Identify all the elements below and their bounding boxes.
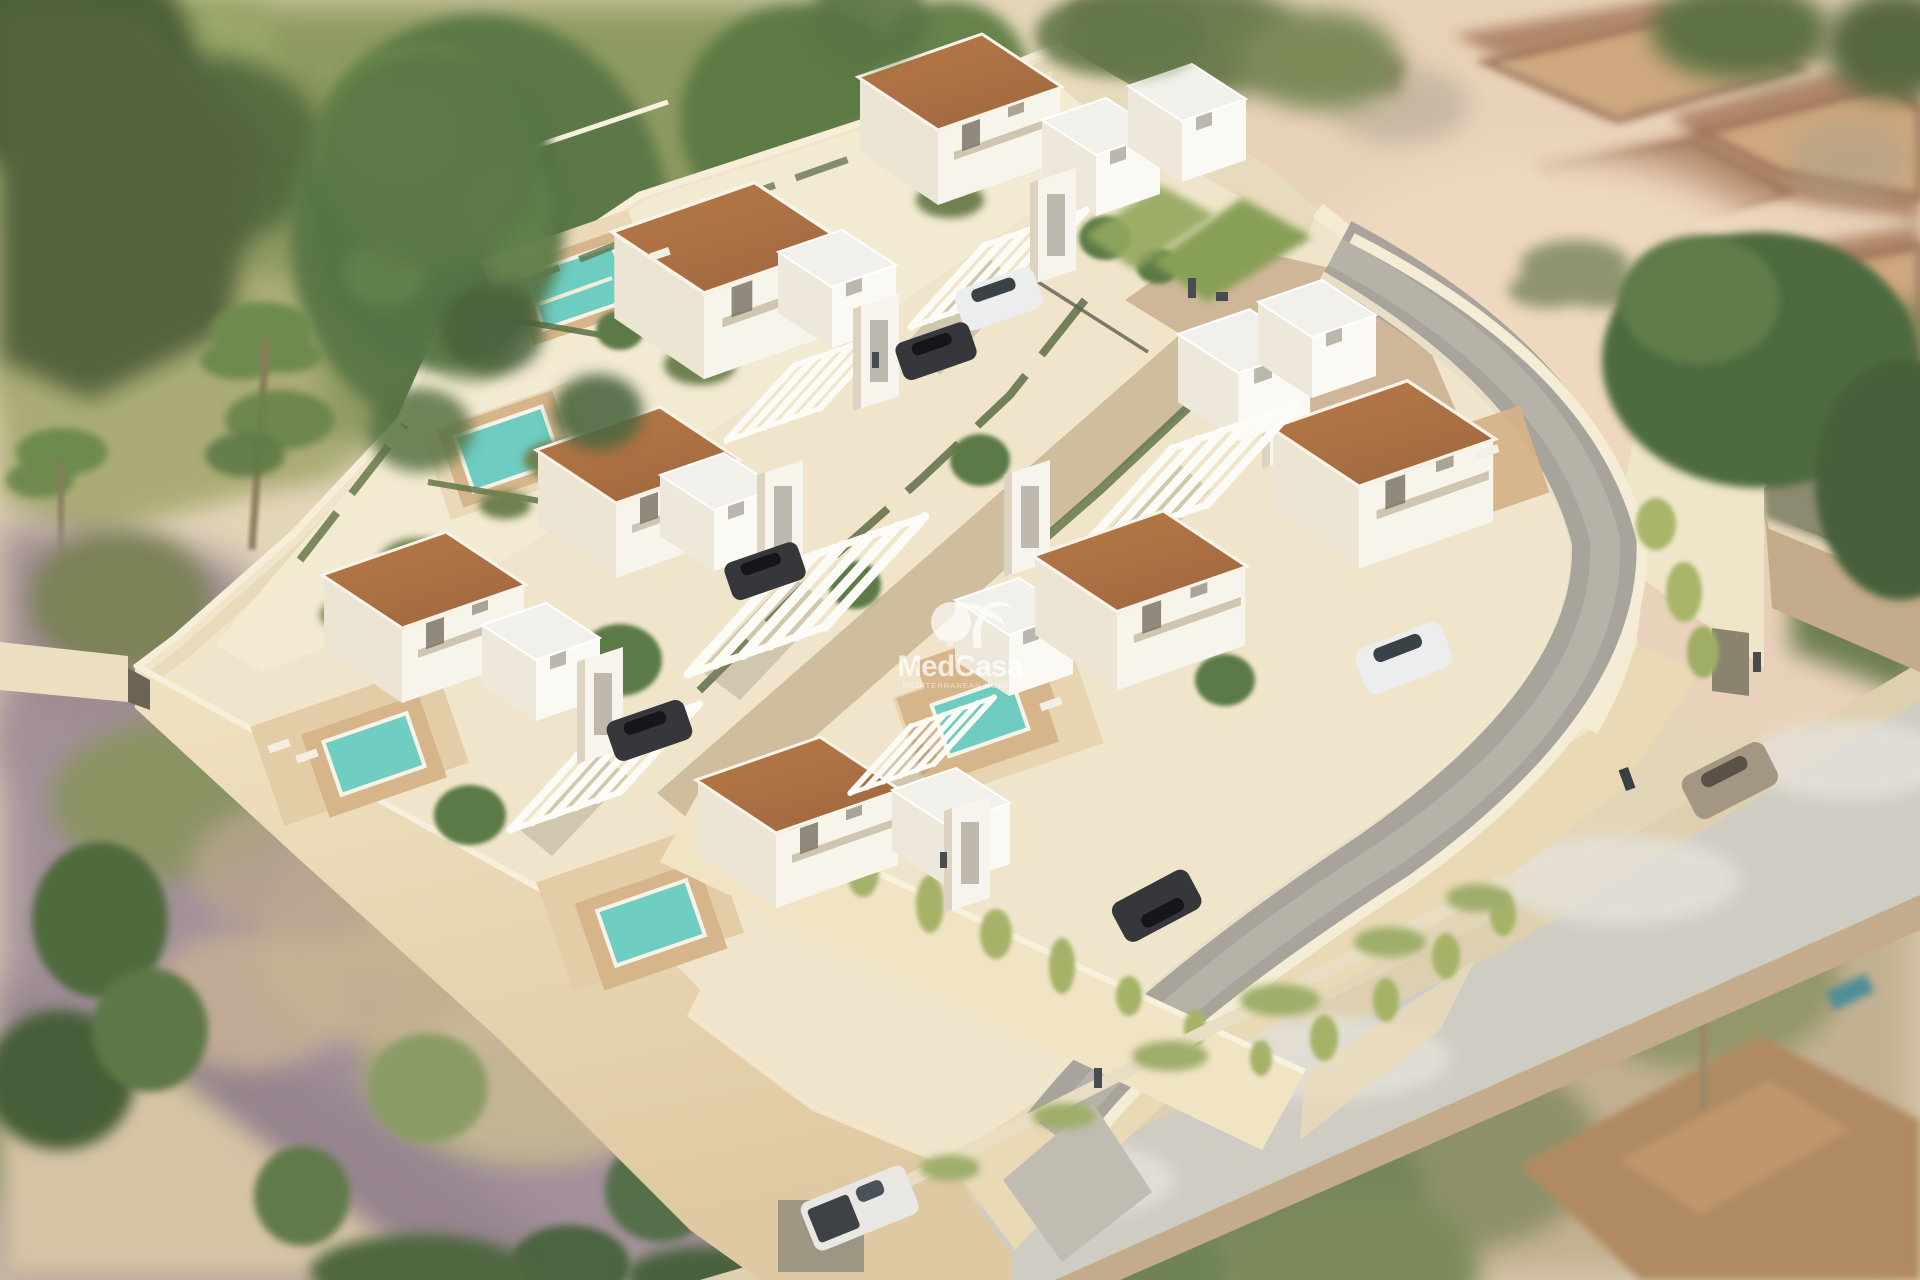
svg-text:MedCasa: MedCasa	[897, 650, 1024, 683]
svg-text:MEDITERRANEAN HOMES: MEDITERRANEAN HOMES	[903, 681, 1018, 690]
